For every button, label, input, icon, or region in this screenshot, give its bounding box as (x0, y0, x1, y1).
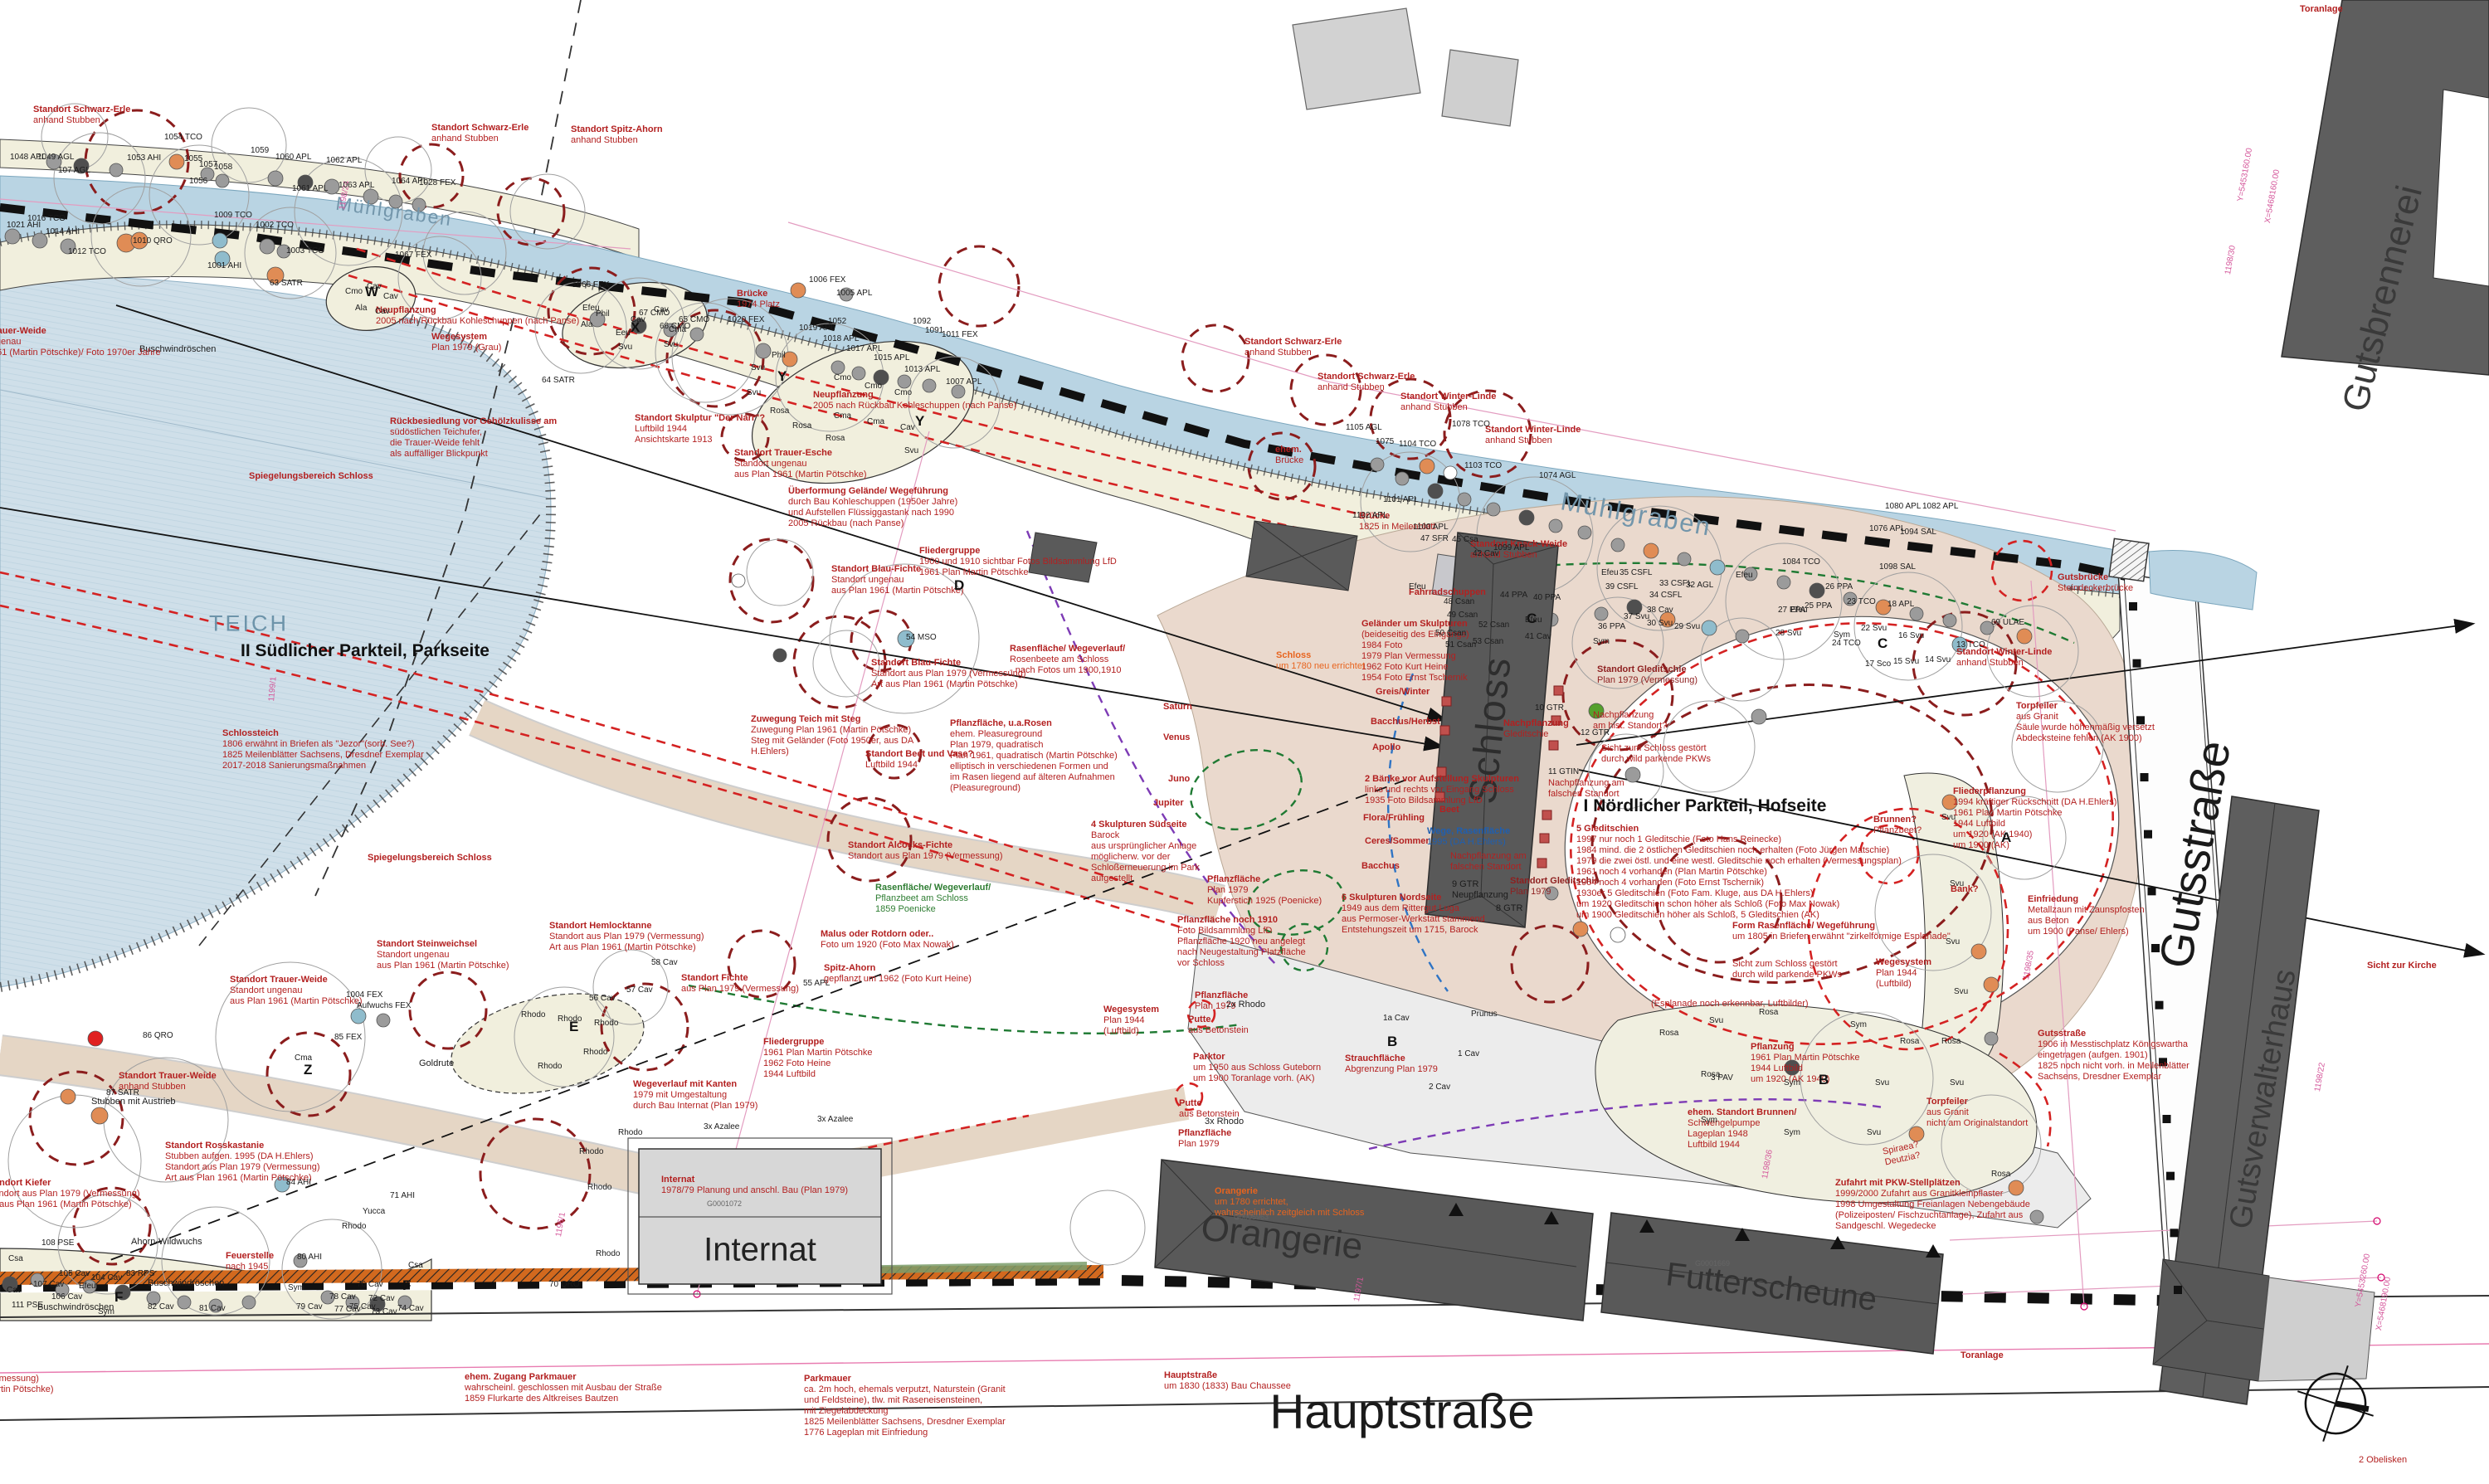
tree-76cav: 76 Cav (357, 1280, 383, 1290)
plant-yucca: Yucca (363, 1207, 385, 1217)
code-g0001669: G0001669 (1695, 1259, 1730, 1268)
plant-svu-b3: Svu (1867, 1128, 1881, 1138)
ann-5gleditschien: 5 Gleditschien 1997 nur noch 1 Gleditsch… (1576, 824, 1902, 921)
tree-73cav: 73 Cav (371, 1307, 397, 1317)
plant-sym-f1: Sym (98, 1307, 114, 1317)
ann-sk-apollo: Apollo (1372, 742, 1400, 753)
ann-pflanz-kupferstich: Pflanzfläche Plan 1979 Kupferstich 1925 … (1207, 874, 1322, 907)
tree-65cmo: 65 CMO (679, 315, 709, 325)
tree-1091: 1091 (925, 326, 943, 336)
ann-neupflanzung-w: Neupflanzung 2005 nach Rückbau Kohleschu… (376, 305, 579, 327)
ann-gutsbruecke: Gutsbrücke Steindeckerbrücke (2058, 572, 2133, 594)
plant-sym-f2: Sym (288, 1283, 304, 1293)
tree-1059: 1059 (251, 146, 269, 156)
tree-50csan: 50 Csan (1435, 629, 1466, 639)
plant-phil-1: Phil (596, 309, 610, 319)
ann-11gtin-note: Nachpflanzung am falschen Standort (1548, 778, 1624, 800)
plant-cav-w1: Cav (367, 282, 382, 292)
ann-toranlage-1: Toranlage (2300, 4, 2343, 15)
ann-internat-info: Internat 1978/79 Planung und anschl. Bau… (661, 1175, 848, 1196)
plant-cmo-2: Cmo (865, 382, 882, 392)
tree-1002: 1002 TCO (256, 221, 294, 231)
ann-sicht-kirche: Sicht zur Kirche (2367, 961, 2437, 971)
tree-58cav: 58 Cav (651, 958, 678, 968)
plant-rhodo-3: Rhodo (594, 1019, 618, 1029)
ann-86qro: 86 QRO (143, 1031, 173, 1041)
tree-1061: 1061 APL (292, 184, 328, 194)
plant-rhodo-4: Rhodo (583, 1048, 607, 1058)
ann-neupflanzung-y: Neupflanzung 2005 nach Rückbau Kohleschu… (813, 390, 1016, 411)
tree-17sco: 17 Sco (1865, 659, 1891, 669)
ann-55apl: 55 APL (803, 979, 830, 989)
plant-svu-a3: Svu (1946, 937, 1960, 947)
ann-pflanzung-b: Pflanzung 1961 Plan Martin Pötschke 1944… (1751, 1042, 1859, 1085)
ann-nachpfl-gleditschie: Nachpflanzung Gleditschie (1503, 718, 1569, 740)
tree-16svu: 16 Svu (1898, 631, 1924, 641)
plant-azalee-2: 3x Azalee (817, 1115, 853, 1125)
ann-buschwind-2: Buschwindröschen (148, 1278, 224, 1289)
tree-1084: 1084 TCO (1782, 557, 1820, 567)
plant-efeu-4: Efeu (1736, 571, 1753, 581)
plant-cav-w2: Cav (383, 292, 398, 302)
tree-1007: 1007 APL (946, 377, 981, 387)
tree-1060: 1060 APL (275, 153, 311, 163)
ann-trauer-esche: Standort Trauer-Esche Standort ungenau a… (734, 448, 867, 480)
area-c2: C (1878, 635, 1887, 652)
area-d: D (954, 577, 964, 594)
tree-105cav: 105 Cav (59, 1269, 90, 1279)
tree-1012: 1012 TCO (68, 247, 106, 257)
tree-71ahi: 71 AHI (390, 1191, 415, 1201)
ann-sk-ceres: Ceres/Sommer (1365, 836, 1430, 847)
tree-52csan: 52 Csan (1478, 620, 1509, 630)
tree-2cav: 2 Cav (1429, 1083, 1450, 1092)
ann-fliedergruppe-2: Fliedergruppe 1961 Plan Martin Pötschke … (763, 1037, 872, 1080)
tree-1005: 1005 APL (836, 289, 872, 299)
tree-45csa: 45 Csa (1452, 535, 1478, 545)
plant-svu-b2: Svu (1875, 1078, 1889, 1088)
ann-ueberformung: Überformung Gelände/ Wegeführung durch B… (788, 486, 957, 529)
ann-ehem-zugang: ehem. Zugang Parkmauer wahrscheinl. gesc… (465, 1372, 662, 1404)
ann-sk-flora: Flora/Frühling (1363, 813, 1425, 824)
tree-44ppa: 44 PPA (1500, 591, 1527, 601)
ann-1004fex: 1004 FEX (346, 990, 382, 1000)
ann-schloss-1780: Schloss um 1780 neu errichtet (1276, 650, 1365, 672)
tree-39csfl: 39 CSFL (1605, 582, 1638, 592)
tree-26ppa: 26 PPA (1825, 582, 1853, 592)
plant-rosa-b3: Rosa (1900, 1037, 1919, 1047)
tree-1015: 1015 APL (874, 353, 909, 363)
plant-rhodo-6: Rhodo (342, 1222, 366, 1232)
tree-57cav: 57 Cav (626, 985, 653, 995)
plant-rhodo-8: Rhodo (579, 1147, 603, 1157)
area-z: Z (304, 1062, 312, 1078)
tree-51csan: 51 Csan (1445, 640, 1476, 650)
park-plan: TEICH II Südlicher Parkteil, Parkseite I… (0, 0, 2489, 1484)
ann-ehem-brunnen: ehem. Standort Brunnen/ Schwengelpumpe L… (1688, 1107, 1796, 1151)
ann-fichte: Standort Fichte aus Plan 1979 (Vermessun… (681, 973, 799, 995)
label-teich: TEICH (209, 611, 289, 637)
plant-csa-f1: Csa (8, 1254, 23, 1264)
ann-esplanade-rest: (Esplanade noch erkennbar, Luftbilder) (1651, 999, 1809, 1010)
ann-sk-bacchus: Bacchus (1361, 861, 1400, 872)
ann-baenke: 2 Bänke vor Aufstellung Skulpturen links… (1365, 774, 1519, 806)
plant-svu-2: Svu (664, 340, 678, 350)
ann-skulptur-narr: Standort Skulptur "Der Narr"? Luftbild 1… (635, 413, 765, 445)
tree-56cav: 56 Cav (589, 994, 616, 1004)
tree-23tco: 23 TCO (1847, 597, 1876, 607)
ann-blau-fichte-2: Standort Blau-Fichte Standort aus Plan 1… (871, 658, 1026, 690)
tree-1003: 1003 TCO (286, 246, 324, 256)
ann-winter-linde-1: Standort Winter-Linde anhand Stubben (1400, 392, 1496, 413)
tree-80ahi: 80 AHI (297, 1253, 322, 1263)
tree-1014: 1014 AHI (46, 227, 80, 237)
ann-trauer-weide-1: Standort Trauer-Weide Standort ungenau a… (230, 975, 363, 1007)
ann-ahorn-wildwuchs: Ahorn-Wildwuchs (131, 1237, 202, 1248)
ann-wegesystem-1944-o: Wegesystem Plan 1944 (Luftbild) (1876, 957, 1931, 990)
area-f: F (114, 1289, 123, 1306)
tree-1105: 1105 AGL (1346, 423, 1382, 433)
tree-69ulae: 69 ULAE (1991, 618, 2024, 628)
tree-29svu: 29 Svu (1674, 622, 1700, 632)
ann-steinweichsel: Standort Steinweichsel Standort ungenau … (377, 939, 509, 971)
tree-107: 107 AGL (58, 166, 90, 176)
plant-ala-w1: Ala (355, 304, 367, 314)
ann-sk-saturn: Saturn (1163, 702, 1192, 713)
tree-37svu: 37 Svu (1624, 612, 1649, 622)
ann-trauer-weide-cut: Standort Trauer-Weide Standort ungenau a… (0, 326, 161, 358)
ann-ehem-bruecke: ehem. Brücke (1275, 445, 1303, 466)
ann-12gtr: 12 GTR (1581, 728, 1610, 738)
ann-8gtr: 8 GTR (1496, 903, 1522, 914)
plant-rhodo-10: Rhodo (596, 1249, 620, 1259)
tree-48csan: 48 Csan (1444, 597, 1474, 607)
plant-cma-3: Cma (867, 417, 884, 427)
plant-rhodo-2: Rhodo (558, 1014, 582, 1024)
tree-1094: 1094 SAL (1900, 528, 1936, 538)
ann-form-rasenflaeche: Form Rasenfläche/ Wegeführung um 1805 in… (1732, 921, 1951, 942)
tree-54mso: 54 MSO (906, 633, 937, 643)
plant-cma-1: Cma (669, 325, 686, 335)
tree-1078: 1078 TCO (1452, 420, 1490, 430)
tree-107cav: 107 Cav (33, 1280, 64, 1290)
tree-1016: 1016 TCO (27, 214, 66, 224)
area-b: B (1819, 1072, 1829, 1088)
ann-rasen-rosenbeete: Rasenfläche/ Wegeverlauf/ Rosenbeete am … (1010, 644, 1125, 676)
plant-efeu-6: Efeu (1601, 568, 1619, 578)
ann-nachpfl-falsch-2: Nachpflanzung am falschen Standort (1450, 851, 1527, 873)
ann-2obelisken: 2 Obelisken (2359, 1455, 2407, 1466)
tree-15svu: 15 Svu (1893, 657, 1919, 667)
ann-wegesystem-1944-w: Wegesystem Plan 1944 (Luftbild) (1103, 1005, 1159, 1037)
ann-11gtin: 11 GTIN (1548, 767, 1579, 777)
tree-1010: 1010 QRO (133, 236, 173, 246)
plant-ala-1: Ala (581, 320, 592, 330)
tree-1082: 1082 APL (1922, 502, 1958, 512)
ann-putte-1: Putte aus Betonstein (1188, 1014, 1249, 1036)
ann-brunnen-pflanzbeet: Brunnen? Pflanzbeet? (1873, 815, 1922, 836)
label-parkteil-sued: II Südlicher Parkteil, Parkseite (241, 641, 490, 661)
tree-81cav: 81 Cav (199, 1304, 226, 1314)
tree-38cav: 38 Cav (1647, 606, 1673, 615)
tree-108pse: 108 PSE (41, 1238, 74, 1248)
ann-pflanz-rosen: Pflanzfläche, u.a.Rosen ehem. Pleasuregr… (950, 718, 1118, 794)
plant-efeu-f1: Efeu (79, 1282, 96, 1292)
ann-bruecke-1974: Brücke 1974 Platz (737, 289, 780, 310)
tree-1102: 1102 APL (1352, 511, 1388, 521)
tree-14svu: 14 Svu (1925, 655, 1951, 665)
ann-schwarz-erle-3: Standort Schwarz-Erle anhand Stubben (1244, 337, 1342, 358)
plant-svu-a1: Svu (1941, 813, 1956, 823)
tree-1006: 1006 FEX (809, 275, 845, 285)
ann-fliederpflanzung: Fliederpflanzung 1994 kräftiger Rückschn… (1953, 786, 2116, 851)
ann-sk-jupiter: Jupiter (1153, 798, 1184, 809)
ann-spitz-ahorn-55: Spitz-Ahorn gepflanzt um 1962 (Foto Kurt… (824, 963, 972, 985)
ann-85fex: 85 FEX (334, 1033, 362, 1043)
ann-toranlage-2: Toranlage (1961, 1350, 2004, 1361)
plant-cmo-3: Cmo (894, 388, 912, 398)
ann-sk-greis: Greis/Winter (1376, 687, 1430, 698)
plant-sym-b1: Sym (1850, 1020, 1867, 1030)
ann-left-frag: aus Plan 1979 (Vermessung) aus Plan 1961… (0, 1374, 54, 1395)
plant-rosa-b4: Rosa (1701, 1070, 1720, 1080)
ann-wegeverlauf-kanten: Wegeverlauf mit Kanten 1979 mit Umgestal… (633, 1079, 757, 1112)
tree-1018: 1018 APL (823, 334, 859, 344)
ann-parktor: Parktor um 1950 aus Schloss Guteborn um … (1193, 1052, 1321, 1084)
tree-1058: 1058 (214, 163, 232, 173)
plant-svu-b1: Svu (1709, 1016, 1723, 1026)
plant-rhodo-1: Rhodo (521, 1010, 545, 1020)
ann-schwarz-erle-4: Standort Schwarz-Erle anhand Stubben (1318, 372, 1415, 393)
ann-2x-rhodo: 2x Rhodo (1226, 1000, 1265, 1010)
tree-79cav: 79 Cav (296, 1302, 323, 1312)
ann-schlossteich: Schlossteich 1806 erwähnt in Briefen als… (222, 728, 424, 771)
ann-kiefer: Standort Kiefer Standort aus Plan 1979 (… (0, 1178, 140, 1210)
ann-sk-bacchus-herbst: Bacchus/Herbst (1371, 717, 1440, 727)
area-f2: F (402, 1277, 411, 1294)
tree-40ppa: 40 PPA (1533, 593, 1561, 603)
ann-spitz-ahorn-top: Standort Spitz-Ahorn anhand Stubben (571, 124, 663, 146)
plant-cav-f1: Cav (7, 1286, 22, 1296)
plant-svu-3: Svu (751, 363, 765, 373)
plant-svu-a2: Svu (1950, 879, 1964, 889)
tree-1011: 1011 FEX (942, 330, 978, 340)
tree-41cav: 41 Cav (1525, 632, 1551, 642)
tree-1028: 1028 FEX (419, 178, 455, 188)
ann-torpfeiler-granit: Torpfeiler aus Granit nicht am Originals… (1926, 1097, 2028, 1129)
plant-rosa-1: Rosa (770, 406, 789, 416)
tree-1cav: 1 Cav (1458, 1049, 1479, 1059)
ann-pflanz-1979-b: Pflanzfläche Plan 1979 (1178, 1128, 1231, 1150)
ann-parkmauer: Parkmauer ca. 2m hoch, ehemals verputzt,… (804, 1374, 1006, 1438)
tree-74cav: 74 Cav (397, 1304, 424, 1314)
ann-rueckbesiedlung: Rückbesiedlung vor Gehölzkulisse am südö… (390, 416, 557, 460)
tree-1056: 1056 (189, 177, 207, 187)
ann-sicht-pkw-2: Sicht zum Schloss gestört durch wild par… (1732, 959, 1842, 980)
code-g0005963: G0005963 (1234, 1213, 1269, 1222)
plant-cav-2: Cav (654, 305, 669, 315)
tree-1080: 1080 APL (1885, 502, 1921, 512)
tree-1099: 1099 APL (1493, 543, 1529, 553)
tree-1054: 1054 TCO (164, 133, 202, 143)
area-y: Y (777, 368, 787, 385)
plant-efeu-2: Efeu (1409, 582, 1426, 592)
plant-cmo-1: Cmo (834, 373, 851, 383)
tree-83rps: 83 RPS (126, 1269, 154, 1279)
plant-cav-1: Cav (631, 315, 645, 325)
ann-spiegelung-1: Spiegelungsbereich Schloss (249, 471, 373, 482)
tree-22svu: 22 Svu (1861, 624, 1887, 634)
tree-1049: 1049 AGL (37, 153, 74, 163)
plant-rosa-b2: Rosa (1759, 1008, 1778, 1018)
tree-30svu: 30 Svu (1647, 619, 1673, 629)
plant-rosa-b1: Rosa (1659, 1029, 1678, 1039)
tree-prunus: Prunus (1471, 1010, 1498, 1019)
plant-svu-a4: Svu (1954, 987, 1968, 997)
tree-104cav: 104 Cav (91, 1273, 122, 1283)
tree-49csan: 49 Csan (1447, 611, 1478, 620)
ann-einfriedung: Einfriedung Metallzaun mit Zaunspfosten … (2028, 894, 2145, 937)
ann-strauchflaeche: Strauchfläche Abgrenzung Plan 1979 (1345, 1053, 1438, 1075)
tree-1020: 1020 FEX (728, 315, 764, 325)
plant-efeu-3: Efeu (1525, 615, 1542, 625)
ann-spiegelung-2: Spiegelungsbereich Schloss (368, 853, 492, 864)
tree-53csan: 53 Csan (1473, 637, 1503, 647)
tree-1103: 1103 TCO (1464, 461, 1502, 471)
tree-70qro: 70 QRO (549, 1280, 580, 1290)
tree-36ppa: 36 PPA (1598, 622, 1625, 632)
tree-63satr: 63 SATR (270, 279, 303, 289)
plant-sym-1: Sym (1834, 630, 1850, 640)
tree-25ppa: 25 PPA (1805, 601, 1832, 611)
plant-efeu-5: Efeu (1790, 606, 1808, 615)
ann-rasen-poenicke: Rasenfläche/ Wegeverlauf/ Pflanzbeet am … (875, 883, 991, 915)
tree-32agl: 32 AGL (1686, 581, 1713, 591)
tree-34csfl: 34 CSFL (1649, 591, 1682, 601)
label-internat: Internat (704, 1232, 816, 1269)
plant-rosa-b5: Rosa (1991, 1170, 2010, 1180)
tree-47sfr: 47 SFR (1420, 534, 1449, 544)
ann-winter-linde-3: Standort Winter-Linde anhand Stubben (1956, 647, 2052, 669)
label-hauptstrasse: Hauptstraße (1269, 1384, 1534, 1440)
tree-1098: 1098 SAL (1879, 562, 1916, 572)
tree-35csfl: 35 CSFL (1620, 568, 1652, 578)
ann-malus-rotdorn: Malus oder Rotdorn oder.. Foto um 1920 (… (821, 929, 954, 951)
ann-sicht-pkw-1: Sicht zum Schloss gestört durch wild par… (1601, 743, 1711, 765)
tree-1067: 1067 FEX (395, 251, 431, 260)
ann-hemlocktanne: Standort Hemlocktanne Standort aus Plan … (549, 921, 704, 953)
plant-sym-b3: Sym (1701, 1116, 1717, 1126)
tree-111pse: 111 PSE (12, 1301, 43, 1311)
plant-cmo-w1: Cmo (345, 287, 363, 297)
plant-svu-5: Svu (904, 446, 918, 456)
tree-1053: 1053 AHI (127, 153, 161, 163)
ann-alcocks-fichte: Standort Alcocks-Fichte Standort aus Pla… (848, 840, 1003, 862)
tree-1100: 1100 APL (1413, 523, 1449, 533)
tree-1075: 1075 (1376, 437, 1394, 447)
plant-cav-w3: Cav (375, 307, 390, 317)
tree-1101: 1101 APL (1383, 495, 1419, 505)
ann-10gtr: 10 GTR (1535, 703, 1564, 713)
tree-1013: 1013 APL (904, 365, 940, 375)
plant-rosa-3: Rosa (826, 434, 845, 444)
tree-28svu: 28 Svu (1775, 629, 1801, 639)
tree-1066: 1066 FEX (572, 280, 609, 290)
ann-sk-juno: Juno (1168, 774, 1190, 785)
tree-1063: 1063 APL (339, 181, 374, 191)
plant-azalee-1: 3x Azalee (704, 1122, 739, 1132)
plant-cma-2: Cma (834, 411, 851, 421)
tree-1062: 1062 APL (326, 156, 362, 166)
tree-82cav: 82 Cav (148, 1302, 174, 1312)
plant-eeu: Eeu (616, 328, 631, 338)
plant-phil-2: Phil (772, 351, 786, 361)
plant-svu-b4: Svu (1950, 1078, 1964, 1088)
ann-schwarz-erle-1: Standort Schwarz-Erle anhand Stubben (33, 105, 130, 126)
tree-1acav: 1a Cav (1383, 1014, 1410, 1024)
ann-87satr: 87 SATR (106, 1088, 139, 1098)
ann-skulpturen-nord: 6 Skulpturen Nordseite 1949 aus dem Ritt… (1342, 893, 1485, 936)
ann-skulpturen-sued: 4 Skulpturen Südseite Barock aus ursprün… (1091, 820, 1200, 884)
plant-sym-b4: Sym (1784, 1128, 1800, 1138)
ann-sk-venus: Venus (1163, 732, 1190, 743)
ann-schwarz-erle-2: Standort Schwarz-Erle anhand Stubben (431, 123, 528, 144)
ann-goldrute: Goldrute (419, 1058, 454, 1069)
ann-stubben-austrieb: Stubben mit Austrieb (91, 1097, 176, 1107)
code-g0001072: G0001072 (707, 1199, 742, 1209)
tree-78cav: 78 Cav (329, 1292, 356, 1302)
plant-rosa-a1: Rosa (1941, 1037, 1961, 1047)
plant-svu-4: Svu (747, 388, 761, 398)
tree-1001: 1001 AHI (207, 261, 241, 271)
tree-1104: 1104 TCO (1399, 440, 1436, 450)
area-a: A (2001, 830, 2011, 846)
ann-zufahrt-pkw: Zufahrt mit PKW-Stellplätzen 1999/2000 Z… (1835, 1178, 2030, 1232)
tree-77cav: 77 Cav (334, 1305, 361, 1315)
ann-fliedergruppe-d: Fliedergruppe 1900 und 1910 sichtbar Fot… (919, 546, 1117, 578)
ann-wege-rasenflaeche: Wege, Rasenfläche 1995 (DA H.Ehlers) (1427, 826, 1510, 848)
plant-rhodo-5: Rhodo (538, 1062, 562, 1072)
plant-rosa-2: Rosa (792, 421, 811, 431)
area-b2: B (1387, 1034, 1397, 1050)
tree-106cav: 106 Cav (51, 1292, 82, 1302)
tree-13tco: 13 TCO (1956, 640, 1985, 650)
tree-18apl: 18 APL (1887, 600, 1914, 610)
ann-winter-linde-2: Standort Winter-Linde anhand Stubben (1485, 425, 1581, 446)
plant-sym-2: Sym (1593, 637, 1610, 647)
plant-rhodo-7: Rhodo (618, 1128, 642, 1138)
ann-aufwuchs-fex: Aufwuchs FEX (357, 1001, 412, 1011)
plant-csa: Csa (408, 1261, 423, 1271)
area-y2: Y (915, 413, 924, 430)
ann-3x-rhodo: 3x Rhodo (1205, 1117, 1244, 1127)
plant-svu-1: Svu (618, 343, 632, 353)
tree-1074: 1074 AGL (1539, 471, 1576, 481)
plant-sym-b2: Sym (1784, 1078, 1800, 1088)
tree-84ahi: 84 AHI (286, 1178, 311, 1188)
ann-pflanz-1910: Pflanzfläche noch 1910 Foto Bildsammlung… (1177, 915, 1306, 969)
plant-rhodo-9: Rhodo (587, 1183, 611, 1193)
building-bottom-right (2153, 1259, 2269, 1381)
tree-1052: 1052 (828, 317, 846, 327)
tree-1009: 1009 TCO (214, 211, 252, 221)
ann-hauptstrasse-info: Hauptstraße um 1830 (1833) Bau Chaussee (1164, 1370, 1291, 1392)
ann-torpfeiler-saeule: Torpfeiler aus Granit Säule wurde höhenm… (2016, 701, 2155, 744)
plant-cav-3: Cav (900, 423, 915, 433)
ann-feuerstelle: Feuerstelle nach 1945 (226, 1251, 274, 1272)
tree-64satr: 64 SATR (542, 376, 575, 386)
ann-gutsstrasse-info: Gutsstraße 1906 in Messtischplatz Königs… (2038, 1029, 2189, 1083)
